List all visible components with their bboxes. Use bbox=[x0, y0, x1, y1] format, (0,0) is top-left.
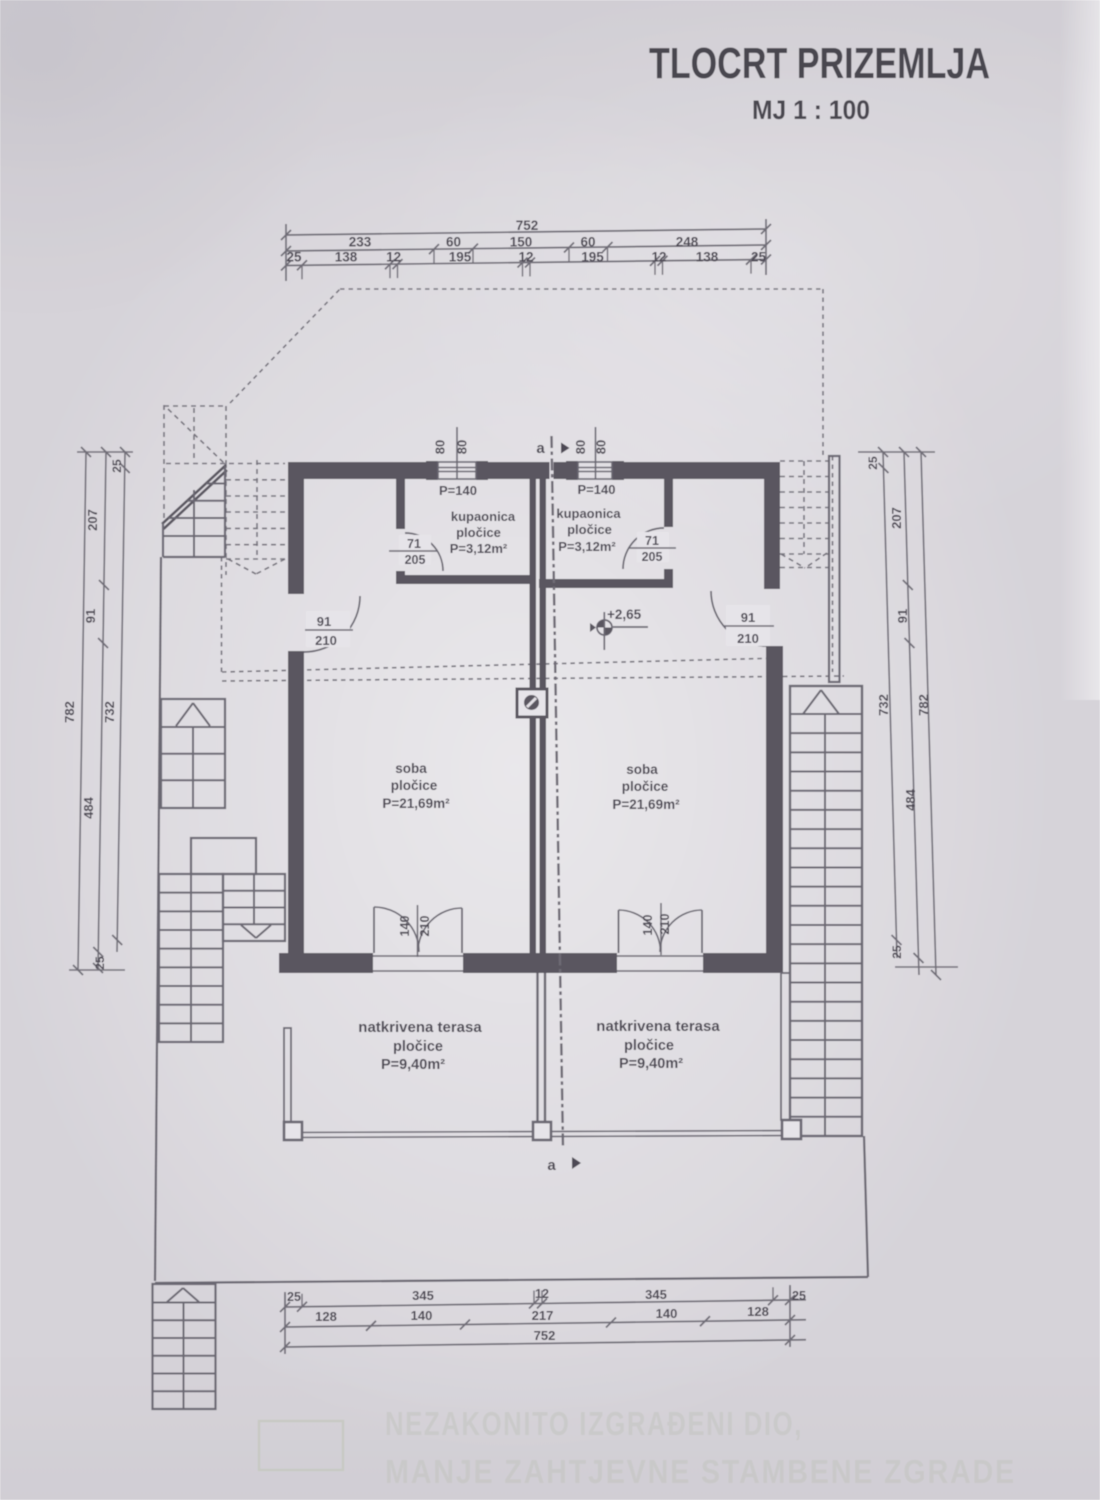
svg-text:pločice: pločice bbox=[624, 1038, 674, 1054]
svg-text:210: 210 bbox=[737, 631, 759, 646]
svg-text:25: 25 bbox=[866, 456, 880, 470]
svg-text:P=140: P=140 bbox=[439, 483, 477, 498]
svg-text:soba: soba bbox=[395, 761, 427, 776]
svg-text:91: 91 bbox=[83, 609, 98, 623]
svg-text:207: 207 bbox=[889, 507, 904, 529]
svg-text:210: 210 bbox=[315, 633, 337, 648]
svg-text:pločice: pločice bbox=[622, 779, 669, 794]
svg-text:25: 25 bbox=[93, 956, 107, 970]
svg-text:732: 732 bbox=[102, 701, 117, 723]
svg-text:60: 60 bbox=[446, 235, 461, 250]
svg-text:91: 91 bbox=[741, 610, 755, 625]
svg-text:140: 140 bbox=[656, 1306, 678, 1321]
svg-text:91: 91 bbox=[895, 609, 910, 623]
svg-text:P=3,12m²: P=3,12m² bbox=[450, 541, 508, 556]
svg-text:+2,65: +2,65 bbox=[607, 607, 642, 622]
svg-text:752: 752 bbox=[534, 1328, 556, 1343]
svg-text:pločice: pločice bbox=[391, 778, 438, 793]
svg-text:pločice: pločice bbox=[567, 522, 612, 537]
svg-text:150: 150 bbox=[510, 235, 533, 250]
svg-text:140: 140 bbox=[398, 916, 412, 937]
svg-text:25: 25 bbox=[751, 250, 767, 265]
svg-text:80: 80 bbox=[455, 440, 470, 454]
svg-text:25: 25 bbox=[792, 1289, 806, 1303]
svg-text:205: 205 bbox=[642, 550, 663, 564]
svg-text:128: 128 bbox=[747, 1304, 769, 1319]
svg-text:233: 233 bbox=[349, 235, 372, 250]
svg-text:210: 210 bbox=[658, 914, 672, 935]
svg-text:195: 195 bbox=[581, 250, 604, 265]
svg-text:kupaonica: kupaonica bbox=[556, 506, 621, 521]
svg-text:P=3,12m²: P=3,12m² bbox=[558, 539, 616, 554]
svg-text:P=140: P=140 bbox=[578, 482, 616, 497]
svg-text:207: 207 bbox=[85, 509, 100, 531]
svg-text:pločice: pločice bbox=[456, 525, 501, 540]
svg-text:12: 12 bbox=[535, 1287, 549, 1301]
svg-text:25: 25 bbox=[286, 250, 302, 265]
svg-text:natkrivena terasa: natkrivena terasa bbox=[596, 1018, 720, 1035]
svg-text:NEZAKONITO IZGRAĐENI DIO,: NEZAKONITO IZGRAĐENI DIO, bbox=[385, 1405, 803, 1442]
svg-text:12: 12 bbox=[386, 250, 401, 265]
svg-text:60: 60 bbox=[580, 235, 595, 250]
svg-text:MJ 1 : 100: MJ 1 : 100 bbox=[752, 95, 870, 125]
svg-text:138: 138 bbox=[335, 250, 358, 265]
svg-text:484: 484 bbox=[903, 788, 918, 810]
svg-text:a: a bbox=[547, 1157, 556, 1174]
svg-text:752: 752 bbox=[516, 218, 539, 233]
svg-text:138: 138 bbox=[696, 250, 719, 265]
svg-text:732: 732 bbox=[876, 694, 891, 716]
svg-text:80: 80 bbox=[573, 440, 588, 454]
svg-text:71: 71 bbox=[407, 537, 421, 551]
svg-text:TLOCRT PRIZEMLJA: TLOCRT PRIZEMLJA bbox=[649, 39, 990, 88]
svg-text:a: a bbox=[536, 440, 545, 457]
svg-text:natkrivena terasa: natkrivena terasa bbox=[358, 1019, 482, 1036]
svg-text:soba: soba bbox=[626, 762, 658, 777]
svg-text:12: 12 bbox=[651, 250, 666, 265]
svg-text:195: 195 bbox=[449, 250, 472, 265]
svg-text:25: 25 bbox=[287, 1290, 301, 1304]
svg-text:91: 91 bbox=[317, 614, 331, 629]
svg-text:80: 80 bbox=[433, 440, 448, 454]
svg-text:80: 80 bbox=[594, 440, 609, 454]
svg-text:pločice: pločice bbox=[393, 1039, 443, 1055]
svg-text:128: 128 bbox=[315, 1309, 337, 1324]
svg-text:P=9,40m²: P=9,40m² bbox=[381, 1057, 445, 1073]
svg-text:217: 217 bbox=[532, 1308, 554, 1323]
svg-text:345: 345 bbox=[412, 1288, 434, 1303]
svg-text:25: 25 bbox=[890, 945, 904, 959]
svg-text:P=21,69m²: P=21,69m² bbox=[382, 796, 450, 811]
svg-text:12: 12 bbox=[518, 250, 533, 265]
svg-text:P=9,40m²: P=9,40m² bbox=[619, 1056, 683, 1072]
svg-text:484: 484 bbox=[81, 796, 96, 818]
svg-text:kupaonica: kupaonica bbox=[451, 509, 516, 524]
svg-text:345: 345 bbox=[645, 1287, 667, 1302]
svg-text:248: 248 bbox=[676, 235, 699, 250]
svg-text:782: 782 bbox=[62, 701, 77, 723]
svg-text:140: 140 bbox=[641, 915, 655, 936]
svg-text:25: 25 bbox=[110, 459, 124, 473]
svg-text:P=21,69m²: P=21,69m² bbox=[612, 797, 680, 812]
svg-text:782: 782 bbox=[916, 694, 931, 716]
svg-text:71: 71 bbox=[645, 534, 659, 548]
svg-text:210: 210 bbox=[418, 916, 432, 937]
svg-text:205: 205 bbox=[405, 553, 426, 567]
svg-text:MANJE ZAHTJEVNE STAMBENE ZGRAD: MANJE ZAHTJEVNE STAMBENE ZGRADE bbox=[385, 1453, 1016, 1490]
svg-text:140: 140 bbox=[411, 1308, 433, 1323]
